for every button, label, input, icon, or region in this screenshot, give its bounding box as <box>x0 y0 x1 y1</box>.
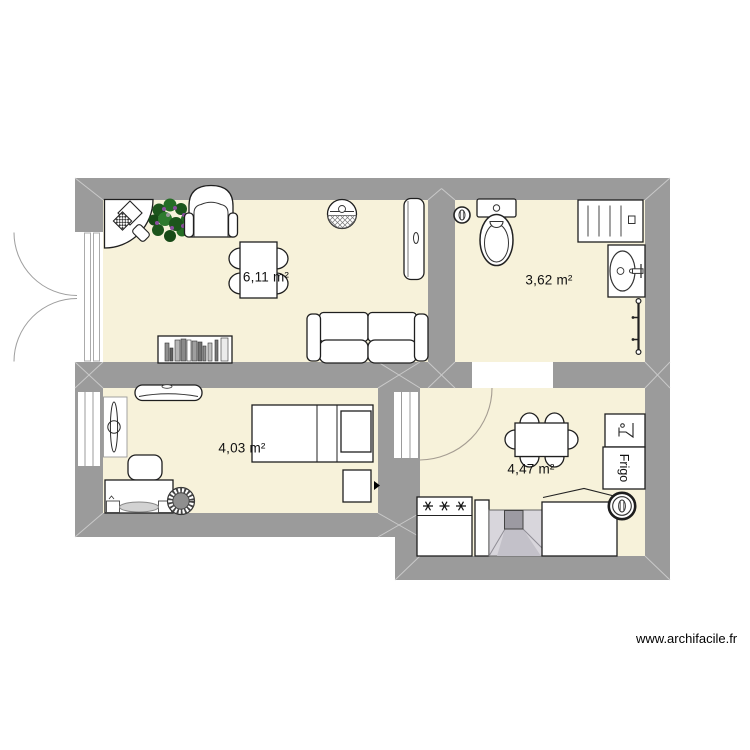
french-door[interactable] <box>14 232 103 362</box>
single-bed[interactable] <box>252 405 373 462</box>
room-area-label-living: 6,11 m² <box>243 270 289 285</box>
washbasin[interactable] <box>608 245 645 297</box>
window-left-bedroom[interactable] <box>78 392 100 466</box>
wall-top[interactable] <box>75 178 670 200</box>
kitchen-table <box>515 423 568 457</box>
toilet[interactable] <box>477 199 516 266</box>
pendant-lamp[interactable] <box>328 200 357 229</box>
armchair[interactable] <box>185 186 238 238</box>
pillow <box>341 411 371 452</box>
room-area-label-bathroom: 3,62 m² <box>525 273 572 288</box>
fridge-label: Frigo <box>603 447 645 489</box>
wall-kitchen-bottom[interactable] <box>395 556 670 580</box>
spot-light-icon-bathroom[interactable] <box>454 207 470 223</box>
sofa[interactable] <box>307 313 428 364</box>
wall-divider-living-bathroom[interactable] <box>428 178 455 388</box>
stove[interactable] <box>417 497 472 556</box>
nightstand[interactable] <box>343 470 371 502</box>
floor-plan-canvas: 6,11 m² 3,62 m² 4,03 m² 4,47 m² Frigo ww… <box>0 0 750 750</box>
pouf[interactable] <box>128 455 162 480</box>
fireplace-flue <box>505 511 524 530</box>
radiator-bathroom[interactable] <box>578 200 643 242</box>
french-door-leaf <box>94 233 100 361</box>
base-cabinet[interactable] <box>475 500 489 556</box>
wall-radiator-living[interactable] <box>404 199 424 280</box>
bookshelf[interactable] <box>158 336 232 363</box>
door-opening <box>472 362 553 388</box>
ironing-board[interactable] <box>104 397 128 457</box>
watermark: www.archifacile.fr <box>636 631 737 646</box>
window-bedroom-kitchen[interactable] <box>394 392 418 458</box>
door-swing-arc <box>14 299 77 362</box>
wicker-stool[interactable] <box>168 488 195 515</box>
wall-middle[interactable] <box>75 362 670 388</box>
door-swing-arc <box>14 233 77 296</box>
spot-light-icon-kitchen[interactable] <box>609 493 635 519</box>
wall-bedroom-bottom[interactable] <box>75 513 420 537</box>
fireplace[interactable] <box>489 510 550 556</box>
room-area-label-bedroom: 4,03 m² <box>218 441 265 456</box>
dressing-table[interactable] <box>105 480 173 513</box>
window-glass <box>78 392 100 466</box>
bar-cabinet[interactable] <box>605 414 645 447</box>
french-door-leaf <box>85 233 91 361</box>
window-glass <box>394 392 418 458</box>
air-conditioner[interactable] <box>135 385 202 401</box>
room-area-label-kitchen: 4,47 m² <box>507 462 554 477</box>
